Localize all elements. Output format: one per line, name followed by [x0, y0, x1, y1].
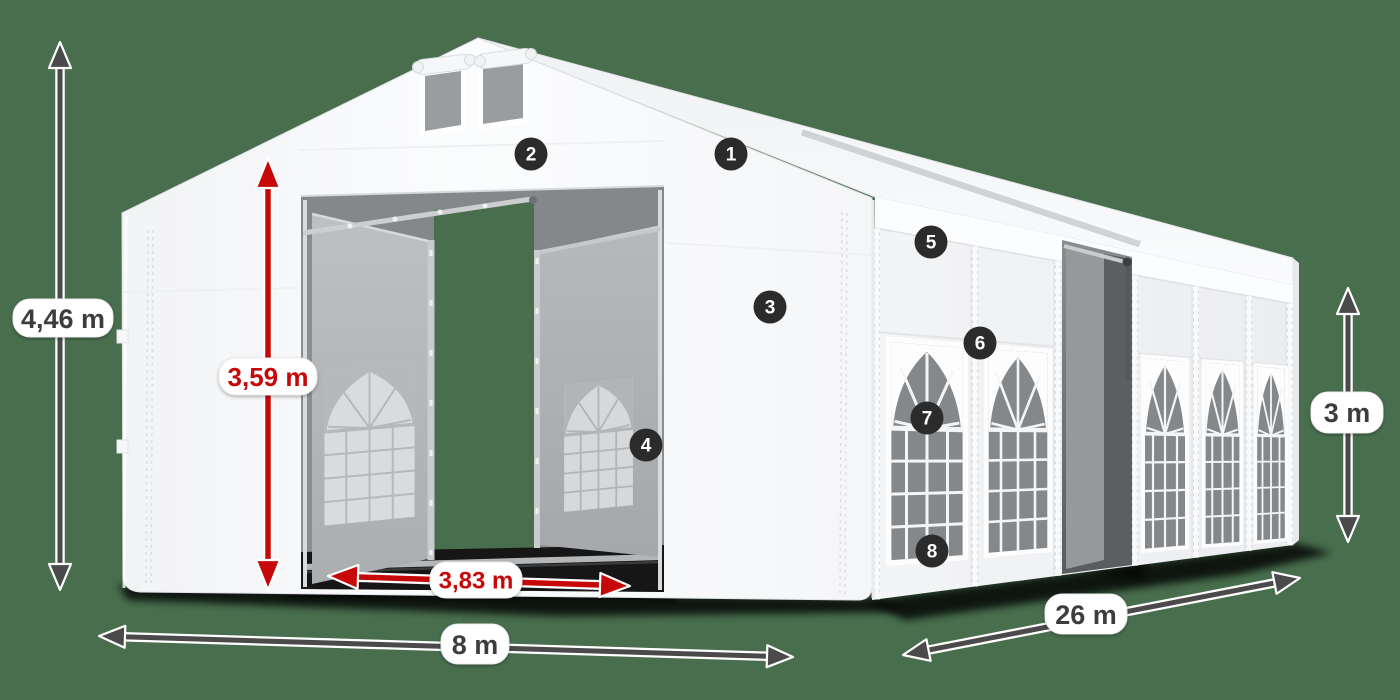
- side-window-4: [1202, 359, 1243, 548]
- side-window-3: [1141, 354, 1189, 553]
- front-width-value: 8 m: [452, 630, 499, 660]
- tent: [117, 38, 1299, 600]
- side-window-1: [886, 336, 968, 566]
- badge-8-number: 8: [927, 542, 938, 563]
- side-window-2: [984, 344, 1052, 558]
- tent-far-end: [1293, 258, 1299, 545]
- callout-badge-2[interactable]: 2: [515, 138, 548, 171]
- badge-1-number: 1: [726, 145, 737, 166]
- label-total-height: 4,46 m: [13, 299, 113, 337]
- badge-3-number: 3: [765, 298, 776, 319]
- entrance-width-value: 3,83 m: [439, 568, 514, 595]
- callout-badge-5[interactable]: 5: [915, 226, 948, 259]
- front-entrance: [301, 186, 664, 592]
- roof-vent-glass: [425, 71, 461, 131]
- label-entrance-height: 3,59 m: [219, 358, 317, 395]
- callout-badge-6[interactable]: 6: [964, 327, 997, 360]
- callout-badge-3[interactable]: 3: [754, 291, 787, 324]
- entrance-height-value: 3,59 m: [228, 362, 309, 392]
- badge-2-number: 2: [526, 145, 537, 166]
- badge-5-number: 5: [926, 233, 937, 254]
- badge-7-number: 7: [922, 409, 933, 430]
- callout-badge-7[interactable]: 7: [911, 402, 944, 435]
- entrance-through-view: [434, 202, 534, 567]
- badge-4-number: 4: [641, 436, 652, 457]
- callout-badge-4[interactable]: 4: [630, 429, 663, 462]
- callout-badge-8[interactable]: 8: [916, 535, 949, 568]
- callout-badge-1[interactable]: 1: [715, 138, 748, 171]
- total-height-value: 4,46 m: [21, 304, 105, 334]
- label-front-width: 8 m: [441, 624, 509, 664]
- door-right-window-print: [564, 378, 633, 512]
- side-door-joint: [1123, 258, 1132, 267]
- label-side-length: 26 m: [1045, 594, 1127, 634]
- side-edge-buckle: [117, 440, 128, 453]
- roof-vent-glass: [483, 64, 523, 124]
- side-door-opening: [1062, 240, 1132, 574]
- wall-height-value: 3 m: [1324, 398, 1371, 428]
- front-left-corner-highlight: [124, 216, 126, 588]
- badge-6-number: 6: [975, 334, 986, 355]
- side-length-value: 26 m: [1055, 600, 1117, 630]
- tent-diagram: 4,46 m 3,59 m 3,83 m 8 m 26 m 3 m 1: [0, 0, 1400, 700]
- door-left-window-print: [324, 364, 414, 526]
- side-edge-buckle: [117, 330, 128, 343]
- label-entrance-width: 3,83 m: [430, 562, 522, 598]
- label-wall-height: 3 m: [1311, 392, 1383, 433]
- side-window-5: [1254, 363, 1288, 544]
- tent-diagram-stage: 4,46 m 3,59 m 3,83 m 8 m 26 m 3 m 1: [0, 0, 1400, 700]
- interior-joint: [529, 196, 537, 204]
